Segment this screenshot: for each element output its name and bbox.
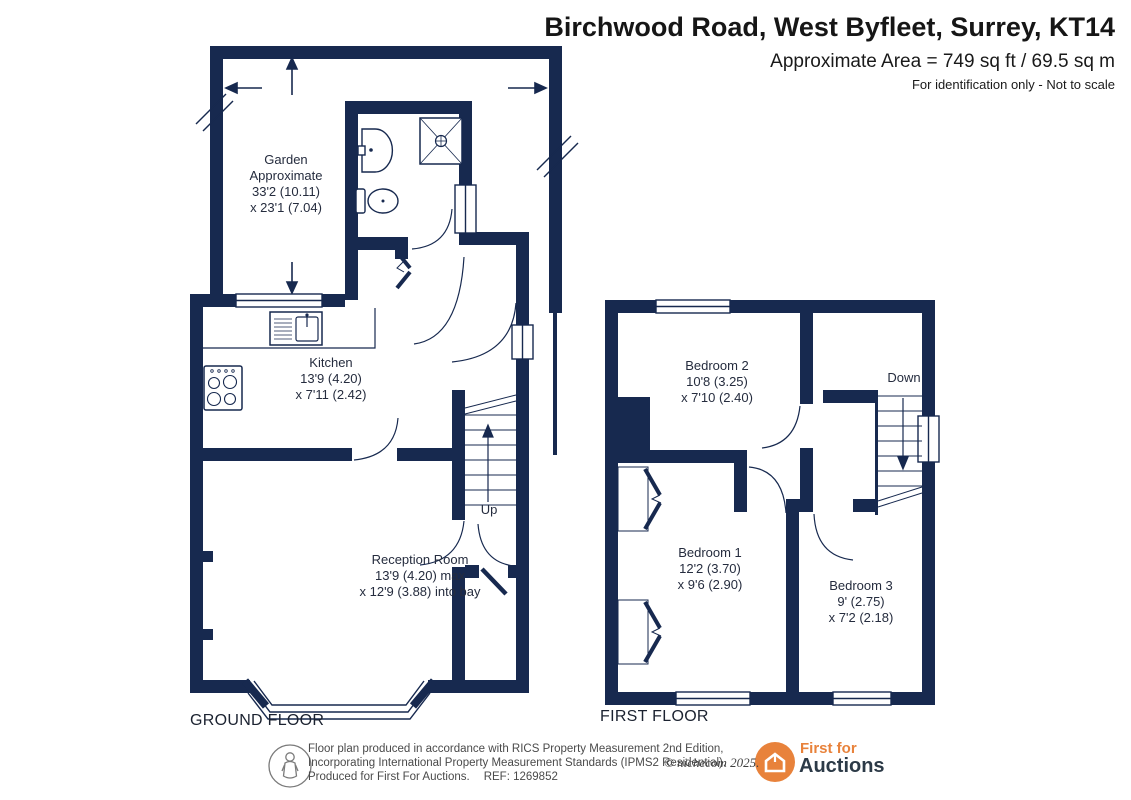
identification-note: For identification only - Not to scale [912, 77, 1115, 92]
toilet-icon [356, 189, 398, 213]
hob-icon [204, 366, 242, 410]
first-floor-title: FIRST FLOOR [600, 708, 709, 726]
reception-dim-1: 13'9 (4.20) max [360, 568, 481, 584]
bedroom1-name: Bedroom 1 [678, 545, 743, 561]
stairs-down-label: Down [887, 370, 920, 385]
footer-disclaimer-line-3: Produced for First For Auctions.REF: 126… [308, 771, 558, 784]
bedroom3-name: Bedroom 3 [829, 578, 894, 594]
floorplan-page: Birchwood Road, West Byfleet, Surrey, KT… [0, 0, 1131, 800]
bedroom2-dim-2: x 7'10 (2.40) [681, 390, 753, 406]
approximate-area: Approximate Area = 749 sq ft / 69.5 sq m [770, 51, 1115, 73]
page-title: Birchwood Road, West Byfleet, Surrey, KT… [544, 12, 1115, 43]
reception-dim-2: x 12'9 (3.88) into bay [360, 584, 481, 600]
bedroom2-name: Bedroom 2 [681, 358, 753, 374]
bedroom3-dim-2: x 7'2 (2.18) [829, 610, 894, 626]
bedroom1-label: Bedroom 1 12'2 (3.70) x 9'6 (2.90) [678, 545, 743, 593]
bedroom1-dim-1: 12'2 (3.70) [678, 561, 743, 577]
footer-disclaimer-line-1: Floor plan produced in accordance with R… [308, 743, 724, 756]
bathroom-sink-icon [358, 129, 392, 172]
garden-name: Garden [250, 152, 323, 168]
bedroom2-label: Bedroom 2 10'8 (3.25) x 7'10 (2.40) [681, 358, 753, 406]
reception-name: Reception Room [360, 552, 481, 568]
ground-door-leaves [397, 252, 506, 594]
reception-room-label: Reception Room 13'9 (4.20) max x 12'9 (3… [360, 552, 481, 600]
brand-auctions: Auctions [799, 755, 885, 778]
stairs-down-arrow [898, 398, 908, 469]
stairs-up-label: Up [481, 502, 498, 517]
kitchen-label: Kitchen 13'9 (4.20) x 7'11 (2.42) [296, 355, 367, 403]
footer-produced-for: Produced for First For Auctions. [308, 771, 470, 783]
garden-dim-1: 33'2 (10.11) [250, 184, 323, 200]
ground-stairs [465, 395, 516, 505]
garden-dim-2: x 23'1 (7.04) [250, 200, 323, 216]
bedroom1-alcoves [618, 467, 661, 664]
bedroom2-dim-1: 10'8 (3.25) [681, 374, 753, 390]
copyright-notice: © nichecom 2025. [664, 755, 759, 771]
kitchen-sink-icon [270, 312, 322, 345]
measurer-person-icon [269, 745, 311, 787]
kitchen-name: Kitchen [296, 355, 367, 371]
footer-ref-number: REF: 1269852 [484, 771, 558, 783]
first-floor-stairs [878, 396, 922, 507]
kitchen-dim-1: 13'9 (4.20) [296, 371, 367, 387]
bedroom3-dim-1: 9' (2.75) [829, 594, 894, 610]
bedroom1-dim-2: x 9'6 (2.90) [678, 577, 743, 593]
bedroom3-label: Bedroom 3 9' (2.75) x 7'2 (2.18) [829, 578, 894, 626]
garden-approx: Approximate [250, 168, 323, 184]
shower-icon [420, 118, 462, 164]
kitchen-dim-2: x 7'11 (2.42) [296, 387, 367, 403]
floorplan-canvas [0, 0, 1131, 800]
ground-floor-title: GROUND FLOOR [190, 712, 324, 730]
garden-label: Garden Approximate 33'2 (10.11) x 23'1 (… [250, 152, 323, 216]
auction-brand-icon [755, 742, 795, 782]
